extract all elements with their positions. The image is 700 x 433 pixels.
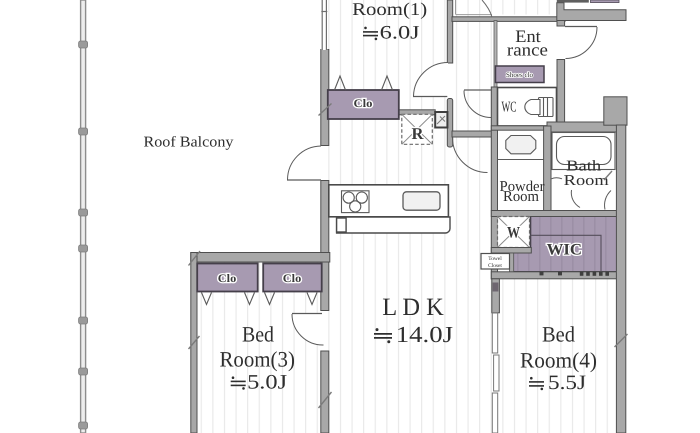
svg-text:Shoes clo: Shoes clo [506,71,534,79]
svg-text:Room(3): Room(3) [219,346,295,371]
svg-text:Room(4): Room(4) [520,347,597,372]
svg-text:Clo: Clo [283,273,302,285]
svg-text:Room(1): Room(1) [352,0,427,19]
svg-text:Clo: Clo [218,273,237,285]
svg-text:Room: Room [503,189,539,205]
svg-text:WC: WC [502,100,517,116]
svg-text:6.0J: 6.0J [380,23,420,44]
svg-text:5.0J: 5.0J [247,372,287,394]
svg-text:Bed: Bed [242,322,274,347]
svg-text:WIC: WIC [547,242,582,259]
svg-text:Roof Balcony: Roof Balcony [144,135,235,151]
svg-text:Closet: Closet [488,263,502,269]
svg-text:R: R [412,124,425,143]
svg-text:5.5J: 5.5J [548,372,586,394]
svg-text:Towel: Towel [488,256,502,262]
svg-text:Clo: Clo [354,98,373,110]
svg-text:W: W [507,225,520,242]
svg-text:14.0J: 14.0J [396,322,453,347]
svg-text:Room: Room [564,173,609,189]
svg-text:L D K: L D K [382,294,444,321]
svg-text:Bed: Bed [542,322,575,347]
svg-text:rance: rance [507,39,548,59]
